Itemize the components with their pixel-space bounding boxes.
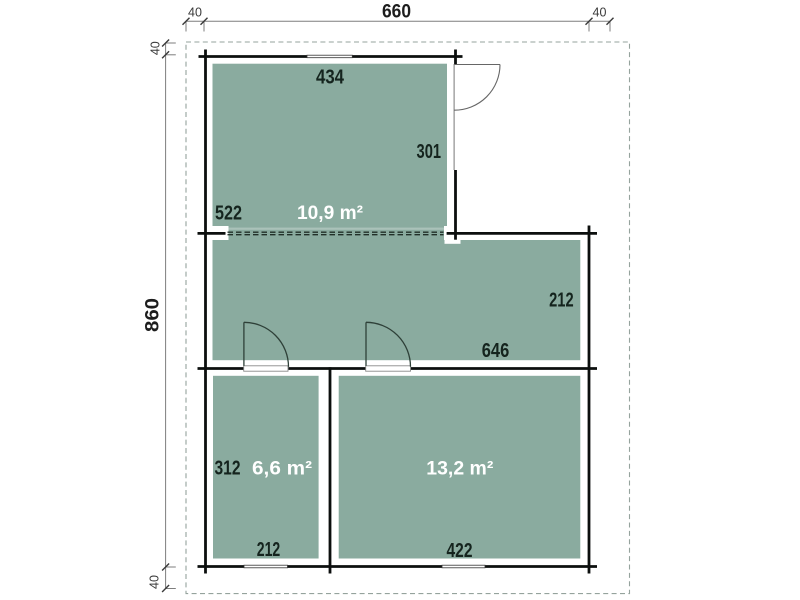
svg-text:40: 40: [188, 6, 202, 20]
svg-text:212: 212: [549, 290, 574, 312]
svg-text:13,2 m²: 13,2 m²: [426, 457, 494, 479]
svg-text:6,6 m²: 6,6 m²: [252, 457, 313, 479]
svg-text:660: 660: [382, 2, 411, 23]
svg-text:10,9 m²: 10,9 m²: [297, 202, 363, 224]
svg-text:860: 860: [142, 298, 163, 332]
svg-text:522: 522: [215, 202, 242, 224]
svg-text:434: 434: [316, 66, 345, 88]
svg-text:422: 422: [447, 540, 473, 562]
svg-text:212: 212: [257, 539, 281, 561]
svg-text:312: 312: [215, 457, 241, 479]
svg-text:646: 646: [482, 340, 510, 362]
svg-text:40: 40: [593, 5, 607, 19]
svg-text:40: 40: [148, 41, 162, 55]
svg-text:40: 40: [147, 575, 161, 589]
svg-text:301: 301: [417, 141, 442, 163]
